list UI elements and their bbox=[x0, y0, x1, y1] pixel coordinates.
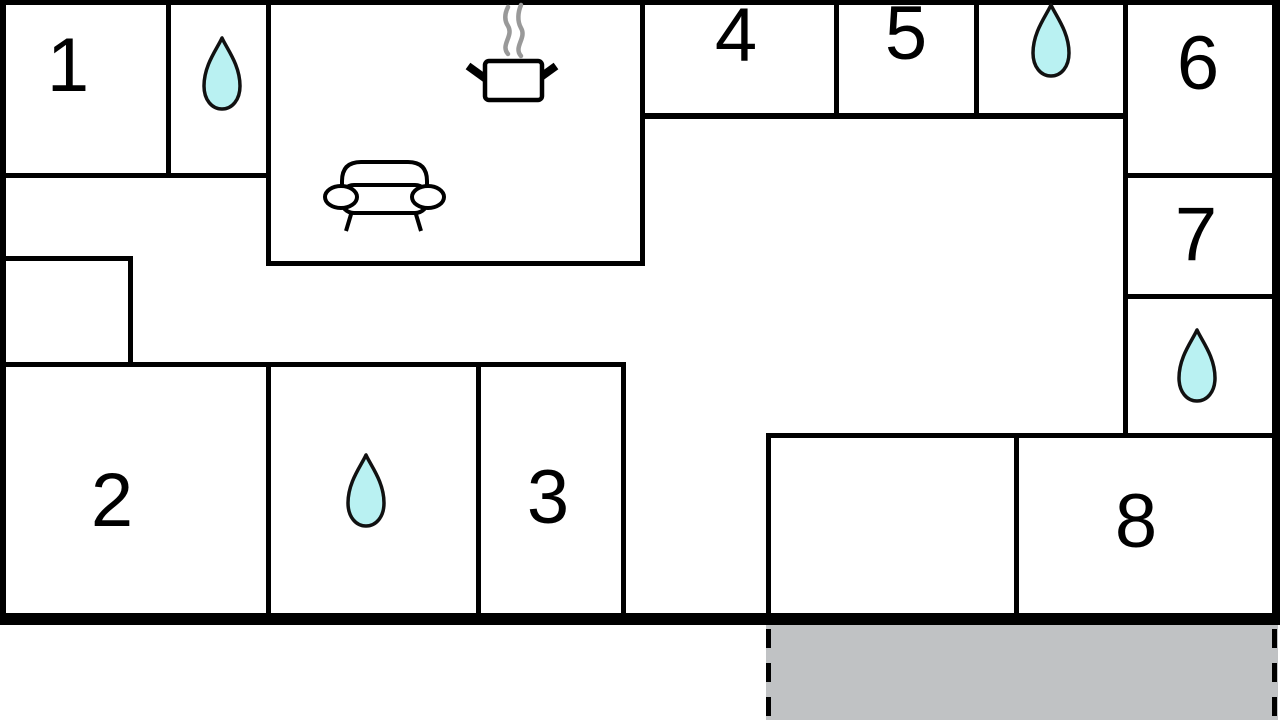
wall-segment bbox=[766, 433, 1278, 438]
terrace-dashed-edge-right bbox=[1272, 629, 1277, 720]
terrace-area bbox=[766, 625, 1278, 720]
terrace-dashed-edge-left bbox=[766, 629, 771, 720]
water-drop-icon bbox=[1029, 2, 1073, 80]
room-label-4: 4 bbox=[715, 0, 757, 74]
room-label-2: 2 bbox=[91, 463, 133, 539]
wall-segment bbox=[0, 256, 132, 261]
wall-segment bbox=[1123, 0, 1128, 437]
wall-segment bbox=[0, 362, 625, 367]
wall-segment bbox=[476, 362, 481, 617]
water-drop-icon bbox=[1175, 327, 1219, 405]
water-drop-icon bbox=[200, 35, 244, 113]
wall-segment bbox=[834, 0, 839, 115]
room-label-3: 3 bbox=[527, 460, 569, 536]
wall-segment bbox=[766, 433, 771, 617]
wall-segment bbox=[0, 613, 1280, 625]
sofa-icon bbox=[318, 155, 450, 237]
steam-line bbox=[518, 5, 522, 56]
wall-segment bbox=[0, 0, 6, 625]
floor-plan: 1 2 3 4 5 6 7 8 bbox=[0, 0, 1280, 720]
steam-line bbox=[505, 7, 509, 54]
room-label-1: 1 bbox=[47, 28, 89, 104]
wall-segment bbox=[266, 362, 271, 617]
room-label-8: 8 bbox=[1115, 484, 1157, 560]
room-label-7: 7 bbox=[1175, 197, 1217, 273]
wall-segment bbox=[1272, 0, 1280, 625]
sofa-armrest bbox=[325, 186, 357, 208]
wall-segment bbox=[621, 362, 626, 617]
room-label-6: 6 bbox=[1177, 26, 1219, 102]
wall-segment bbox=[1014, 433, 1019, 617]
sofa-armrest bbox=[412, 186, 444, 208]
cooking-pot-icon bbox=[460, 2, 564, 106]
water-drop-icon bbox=[344, 452, 388, 530]
wall-segment bbox=[266, 261, 645, 266]
wall-segment bbox=[0, 173, 271, 178]
wall-segment bbox=[1123, 294, 1280, 299]
wall-segment bbox=[266, 0, 271, 266]
wall-segment bbox=[640, 0, 645, 266]
wall-segment bbox=[128, 256, 133, 367]
pot-body bbox=[485, 61, 542, 100]
wall-segment bbox=[640, 113, 1128, 119]
wall-segment bbox=[974, 0, 979, 115]
wall-segment bbox=[1123, 173, 1280, 178]
wall-segment bbox=[166, 0, 171, 177]
room-label-5: 5 bbox=[885, 0, 927, 72]
